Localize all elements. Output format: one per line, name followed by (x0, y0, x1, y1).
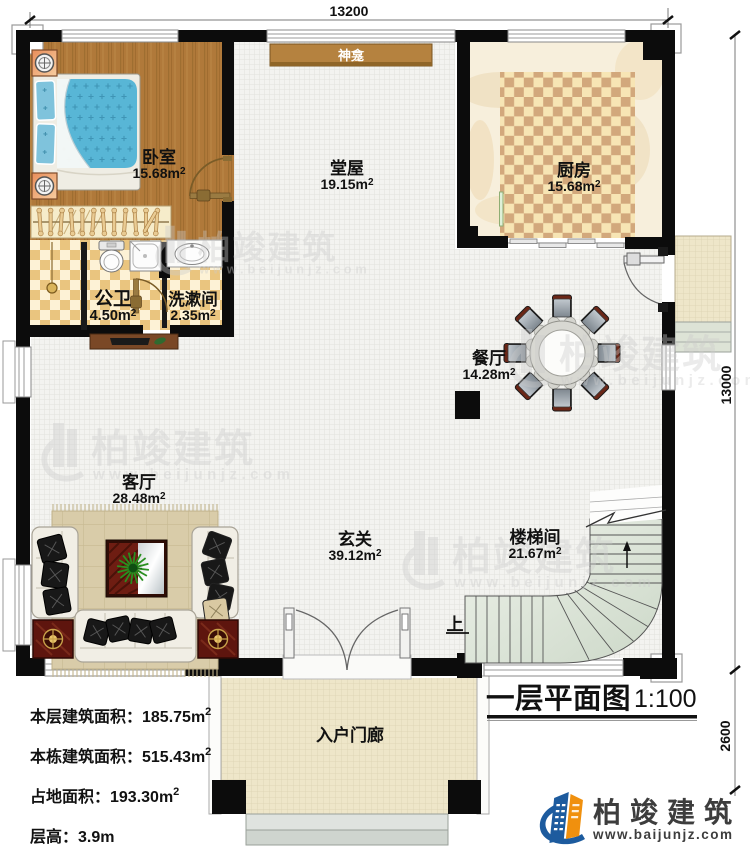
svg-text:www.beijunjz.com: www.beijunjz.com (453, 574, 655, 591)
svg-text:15.68m2: 15.68m2 (132, 165, 185, 181)
svg-text:21.67m2: 21.67m2 (508, 545, 561, 561)
svg-text:13200: 13200 (330, 3, 369, 19)
svg-text:卧室: 卧室 (142, 147, 176, 167)
svg-text:公卫: 公卫 (94, 288, 131, 309)
svg-text:www.beijunjz.com: www.beijunjz.com (198, 261, 370, 276)
svg-text:2.35m2: 2.35m2 (170, 307, 216, 323)
svg-text:堂屋: 堂屋 (330, 158, 364, 178)
svg-text:4.50m2: 4.50m2 (90, 308, 137, 324)
svg-text:13000: 13000 (718, 365, 734, 404)
svg-text:19.15m2: 19.15m2 (320, 176, 373, 192)
svg-text:1:100: 1:100 (634, 685, 697, 713)
svg-text:柏竣建筑: 柏竣建筑 (593, 796, 741, 828)
svg-text:楼梯间: 楼梯间 (510, 527, 561, 547)
svg-text:层高：3.9m: 层高：3.9m (30, 827, 114, 846)
svg-text:2600: 2600 (717, 720, 733, 751)
svg-text:15.68m2: 15.68m2 (547, 178, 600, 194)
svg-text:柏竣建筑: 柏竣建筑 (91, 428, 255, 471)
svg-text:本栋建筑面积：515.43m2: 本栋建筑面积：515.43m2 (30, 746, 211, 766)
svg-text:洗漱间: 洗漱间 (168, 289, 218, 309)
svg-text:神龛: 神龛 (338, 48, 365, 63)
svg-text:餐厅: 餐厅 (472, 348, 506, 368)
svg-text:客厅: 客厅 (121, 472, 156, 492)
svg-text:厨房: 厨房 (557, 160, 591, 180)
svg-text:上: 上 (447, 615, 464, 634)
svg-text:柏竣建筑: 柏竣建筑 (559, 334, 723, 377)
svg-text:www.baijunjz.com: www.baijunjz.com (592, 827, 734, 842)
svg-text:一层平面图: 一层平面图 (486, 683, 631, 715)
svg-text:玄关: 玄关 (338, 529, 372, 549)
svg-text:39.12m2: 39.12m2 (328, 547, 381, 563)
svg-text:28.48m2: 28.48m2 (112, 490, 165, 506)
svg-text:14.28m2: 14.28m2 (462, 366, 515, 382)
svg-text:本层建筑面积：185.75m2: 本层建筑面积：185.75m2 (30, 706, 211, 726)
svg-text:入户门廊: 入户门廊 (316, 725, 384, 745)
svg-text:占地面积：193.30m2: 占地面积：193.30m2 (30, 786, 179, 806)
